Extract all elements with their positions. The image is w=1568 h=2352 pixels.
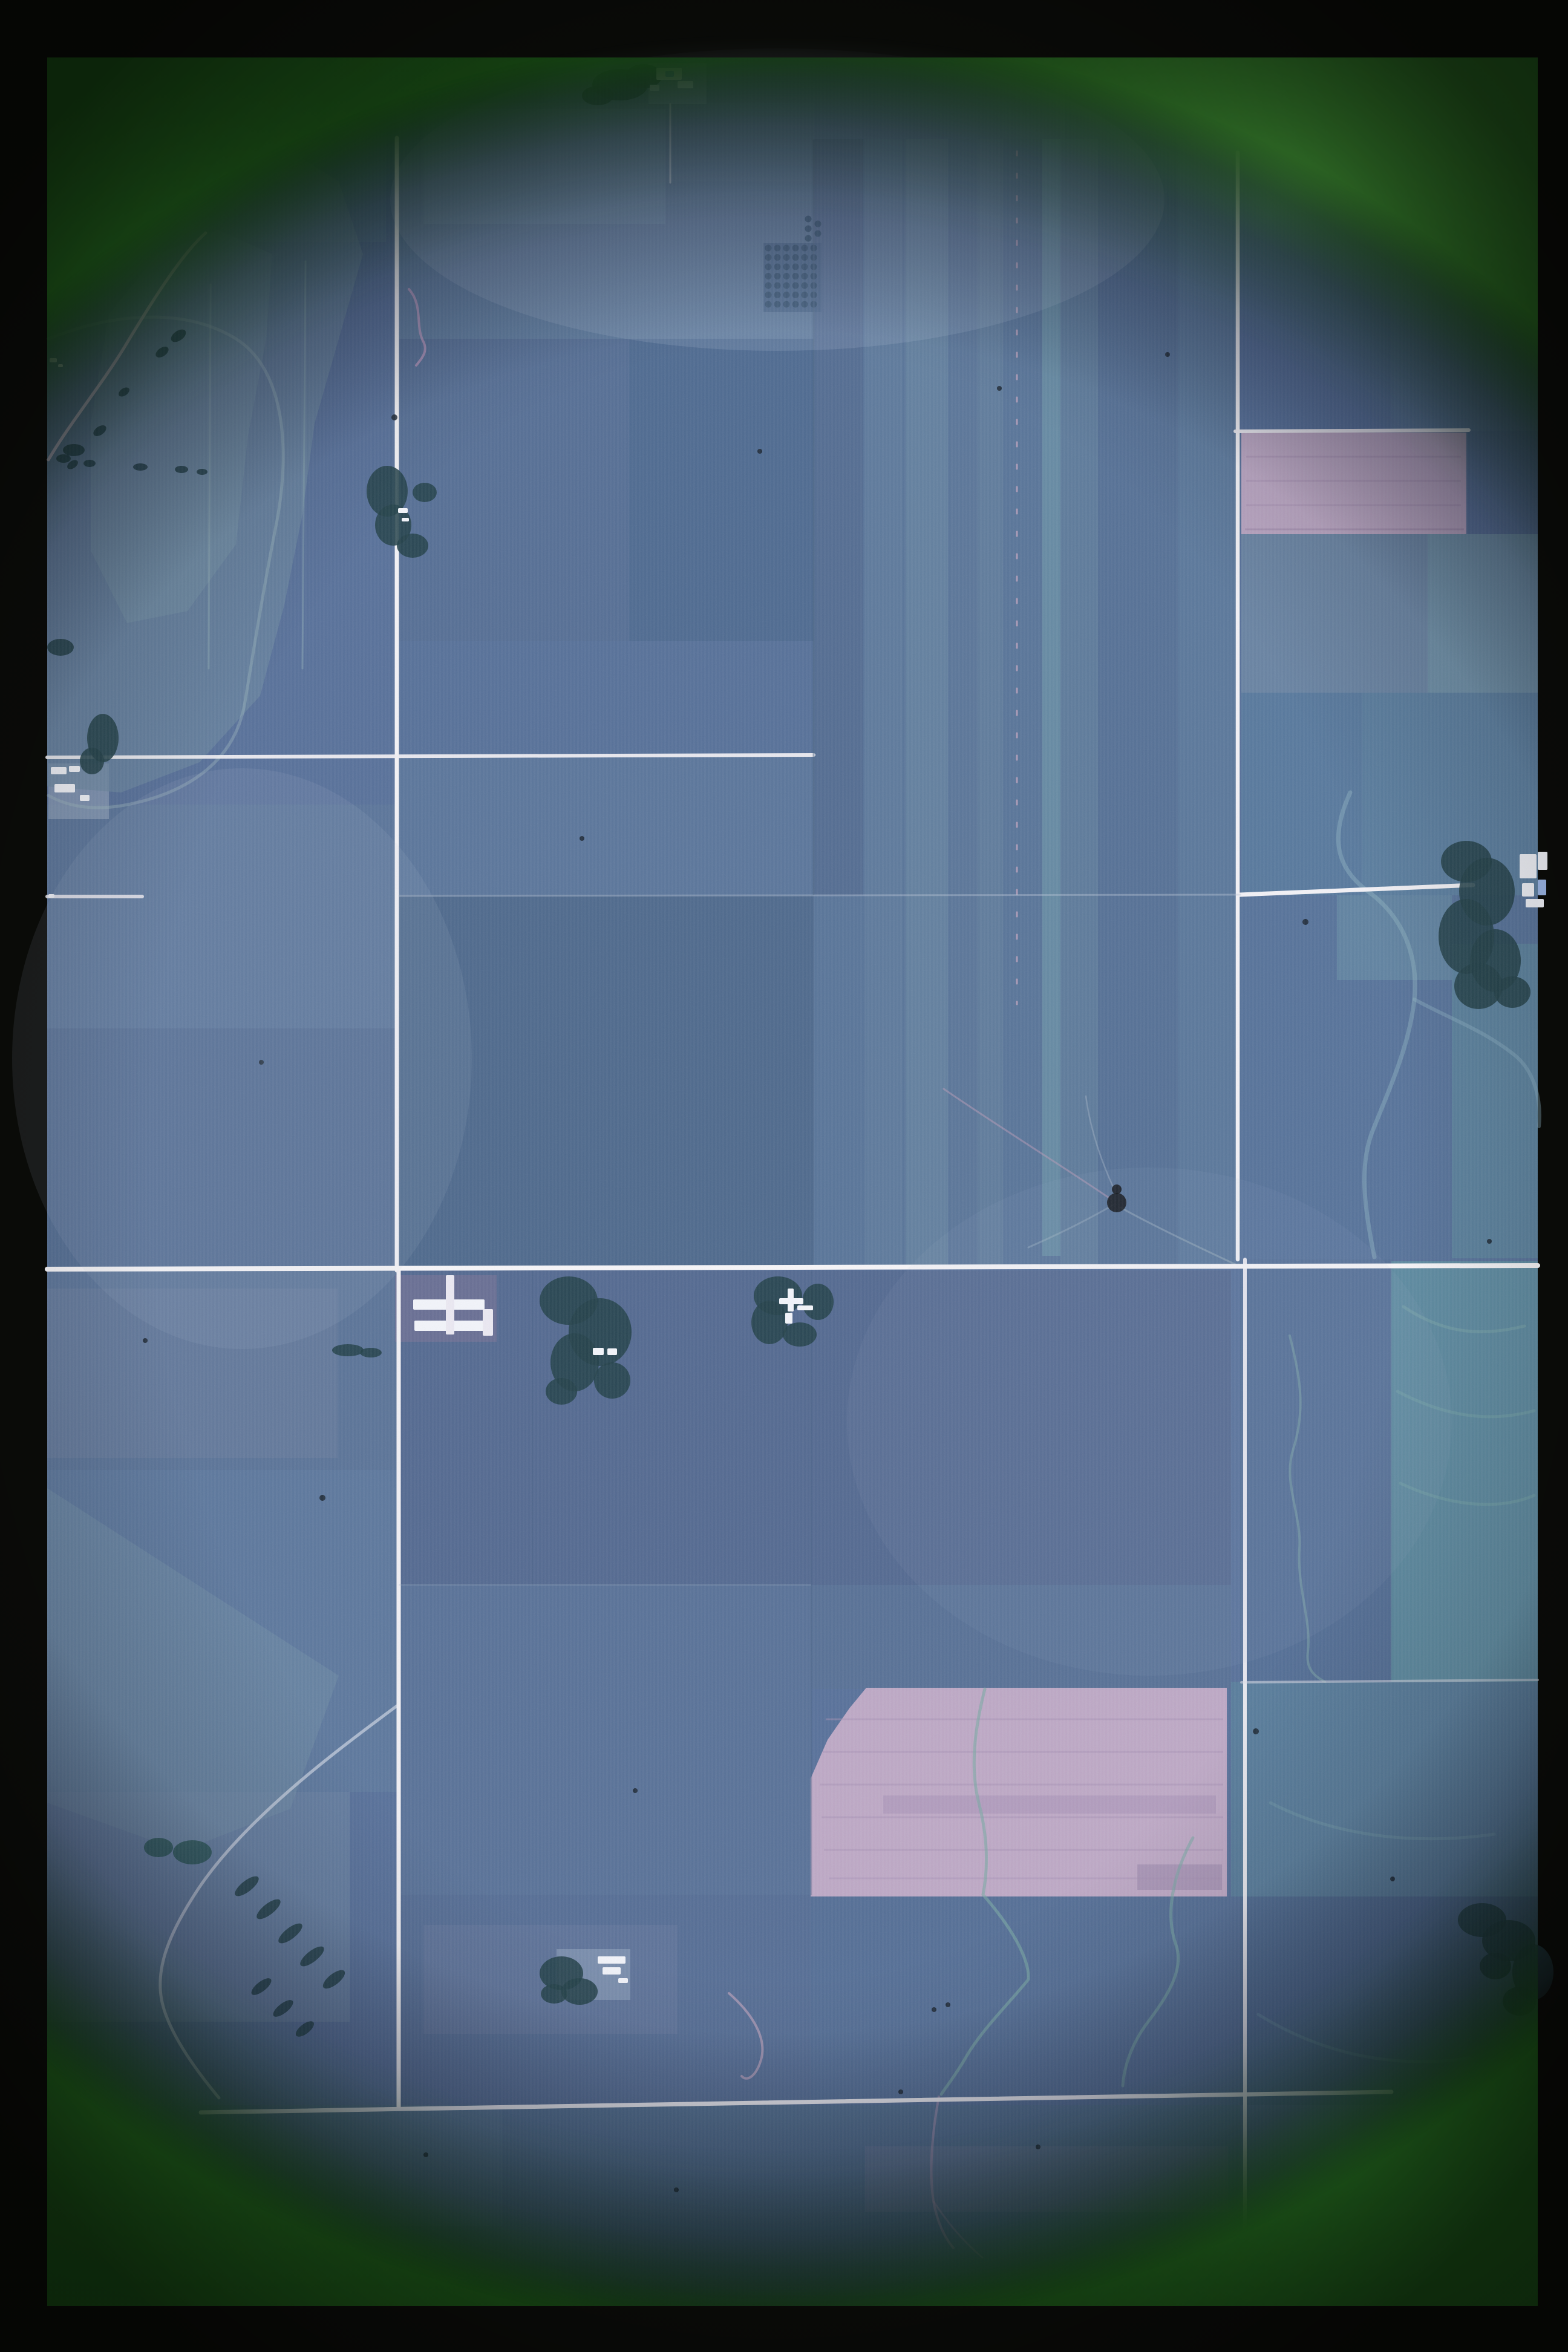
lens-vignette <box>47 57 1538 2306</box>
aerial-photo-scan <box>0 0 1568 2352</box>
aerial-photograph <box>12 36 1553 2306</box>
farmstead-building <box>1538 852 1547 870</box>
film-scan-stage <box>0 0 1568 2352</box>
farmstead-building <box>1538 880 1546 895</box>
